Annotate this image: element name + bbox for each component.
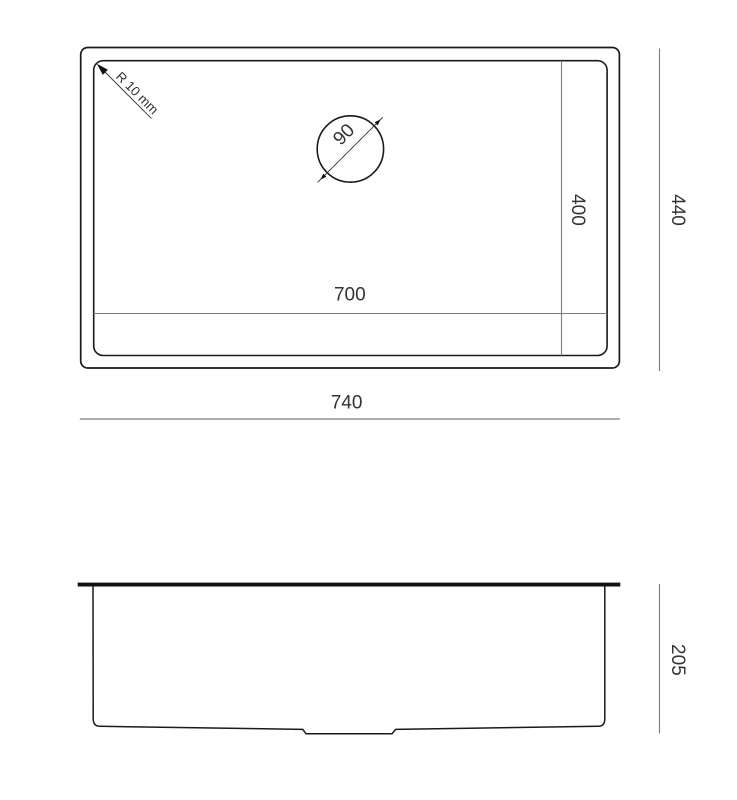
svg-text:440: 440 [667,194,688,226]
svg-text:700: 700 [334,284,366,305]
svg-text:205: 205 [667,644,688,676]
svg-text:R 10 mm: R 10 mm [113,69,161,117]
svg-text:740: 740 [331,393,363,414]
svg-text:400: 400 [567,194,588,226]
